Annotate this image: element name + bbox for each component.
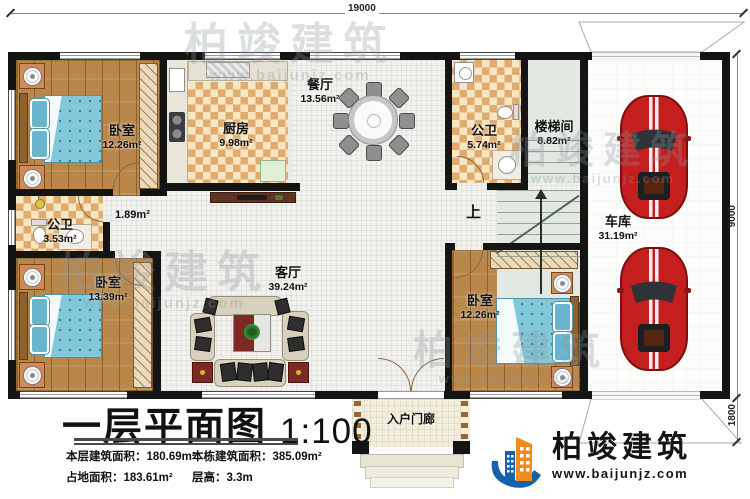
room-area: 12.26m²: [460, 309, 499, 321]
stat-label: 本层建筑面积：: [66, 451, 147, 463]
floor-plan-sheet: 上: [0, 0, 750, 499]
lamp-icon: [35, 199, 45, 209]
window: [8, 210, 16, 245]
garage-door: [592, 52, 700, 60]
ceiling-fan-icon: [23, 67, 42, 86]
interior-wall: [160, 52, 167, 196]
window: [460, 52, 515, 60]
sofa-cushion: [220, 362, 237, 382]
sofa-pillow: [287, 336, 305, 352]
room-name: 公卫: [47, 218, 73, 233]
exterior-wall: [8, 52, 16, 90]
interior-wall: [160, 183, 300, 191]
room-label-bedroom1: 卧室 12.26m²: [86, 124, 158, 151]
pillow: [553, 332, 572, 362]
pillow: [30, 297, 49, 326]
room-label-garage: 车库 31.19m²: [582, 215, 654, 242]
room-name: 卧室: [95, 276, 121, 291]
plant-icon: [244, 324, 260, 340]
side-mat: [192, 362, 213, 383]
room-area: 13.39m²: [88, 291, 127, 303]
room-name: 卧室: [467, 294, 493, 309]
interior-wall: [8, 251, 115, 258]
washing-machine-icon: [454, 62, 474, 83]
stat-value: 385.09m²: [273, 451, 322, 463]
pillow: [30, 129, 49, 159]
toilet-tank: [513, 104, 519, 120]
sofa-cushion: [236, 362, 253, 381]
exterior-wall: [8, 160, 16, 210]
room-name: 卧室: [109, 124, 135, 139]
nightstand: [19, 264, 45, 290]
stat-item: 层高：3.3m: [192, 469, 322, 485]
interior-wall: [153, 258, 161, 391]
room-name: 楼梯间: [534, 120, 573, 135]
mat-medallion: [296, 370, 301, 375]
room-name: 车库: [605, 215, 631, 230]
room-name: 客厅: [275, 266, 301, 281]
room-name: 公卫: [471, 124, 497, 139]
hall-area-label: 1.89m²: [115, 209, 150, 221]
stat-item: 本栋建筑面积：385.09m²: [192, 448, 322, 464]
porch-pillar-right: [453, 441, 470, 454]
nightstand: [19, 362, 45, 388]
brand-block: 柏竣建筑 www.baijunjz.com: [552, 433, 692, 481]
tv-sideboard: [210, 192, 296, 203]
dining-chair: [399, 113, 415, 129]
room-label-bedroom2: 卧室 13.39m²: [72, 276, 144, 303]
room-area: 31.19m²: [598, 230, 637, 242]
window: [205, 52, 280, 60]
table-center: [367, 114, 381, 128]
stair-up-label: 上: [466, 201, 481, 222]
sink-basin-icon: [498, 156, 516, 174]
stat-label: 层高：: [192, 472, 227, 484]
room-area: 9.98m²: [219, 137, 252, 149]
room-label-dining: 餐厅 13.56m²: [284, 78, 356, 105]
interior-wall: [445, 243, 455, 250]
stat-item: 本层建筑面积：180.69m²: [66, 448, 192, 464]
window: [470, 391, 562, 399]
stat-label: 占地面积：: [66, 472, 124, 484]
exterior-wall: [8, 391, 20, 399]
interior-wall: [483, 243, 580, 250]
sofa-north: [208, 296, 282, 316]
garage-door: [592, 391, 700, 399]
room-area: 8.82m²: [537, 135, 570, 147]
exterior-wall: [444, 391, 470, 399]
interior-wall: [445, 183, 457, 190]
interior-wall: [521, 52, 528, 183]
ceiling-fan-icon: [23, 169, 42, 188]
ceiling-fan-icon: [553, 274, 572, 293]
room-label-bath2: 公卫 5.74m²: [452, 124, 516, 151]
bed-headboard: [19, 292, 28, 360]
kitchen-sink-icon: [169, 68, 185, 92]
entry-door-opening: [378, 391, 444, 399]
room-label-porch: 入户门廊: [358, 413, 464, 427]
room-area: 39.24m²: [268, 281, 307, 293]
ceiling-fan-icon: [553, 368, 572, 387]
exterior-wall: [140, 52, 205, 60]
bed-mattress: [44, 294, 102, 358]
stat-value: 183.61m²: [124, 472, 173, 484]
range-hood-icon: [206, 62, 250, 78]
dimension-right-label: 9000: [727, 205, 738, 227]
room-area: 3.53m²: [43, 233, 76, 245]
stove-icon: [169, 112, 185, 142]
room-name: 餐厅: [307, 78, 333, 93]
pillow: [30, 325, 49, 354]
interior-wall: [445, 52, 452, 190]
sofa-pillow: [287, 316, 305, 333]
nightstand: [551, 366, 573, 388]
ceiling-fan-icon: [23, 366, 42, 385]
window: [8, 290, 16, 360]
car-top-view-icon: [616, 94, 692, 220]
washer-drum: [459, 67, 472, 80]
sofa-pillow: [194, 336, 212, 352]
dimension-right-lower-label: 1800: [727, 404, 738, 426]
mat-medallion: [200, 370, 205, 375]
plan-scale: 1:100: [280, 412, 373, 452]
room-area: 13.56m²: [300, 93, 339, 105]
room-label-kitchen: 厨房 9.98m²: [200, 122, 272, 149]
window: [60, 52, 140, 60]
pillow: [30, 99, 49, 129]
dining-table: [349, 96, 397, 144]
sofa-cushion: [267, 362, 284, 382]
tv-icon: [237, 195, 267, 200]
room-area: 12.26m²: [102, 139, 141, 151]
area-statistics: 本层建筑面积：180.69m² 本栋建筑面积：385.09m² 占地面积：183…: [66, 448, 322, 485]
window: [8, 90, 16, 160]
title-underline: [74, 443, 298, 445]
car-top-view-icon: [616, 246, 692, 372]
stat-value: 3.3m: [227, 472, 253, 484]
interior-wall: [143, 251, 161, 258]
pillow: [553, 302, 572, 332]
nightstand: [19, 165, 45, 191]
nightstand: [19, 63, 45, 89]
room-label-bath1: 公卫 3.53m²: [28, 218, 92, 245]
interior-wall: [8, 189, 113, 196]
sofa-pillow: [194, 317, 212, 334]
room-label-bedroom3: 卧室 12.26m²: [444, 294, 516, 321]
toilet-icon: [497, 106, 513, 119]
room-name: 入户门廊: [387, 413, 435, 427]
room-label-living: 客厅 39.24m²: [248, 266, 328, 293]
fridge-icon: [260, 160, 286, 182]
dimension-top-label: 19000: [345, 3, 379, 14]
interior-wall: [487, 183, 528, 190]
stat-item: 占地面积：183.61m²: [66, 469, 192, 485]
brand-website: www.baijunjz.com: [552, 466, 692, 481]
stat-value: 180.69m²: [147, 451, 196, 463]
side-mat: [288, 362, 309, 383]
room-area: 5.74m²: [467, 139, 500, 151]
stair-arrow-icon: [535, 189, 547, 199]
dining-chair: [366, 145, 382, 161]
room-label-stairwell: 楼梯间 8.82m²: [522, 120, 586, 147]
dining-chair: [333, 113, 349, 129]
room-name: 厨房: [223, 122, 249, 137]
window: [310, 52, 400, 60]
exterior-wall: [280, 52, 310, 60]
bed-sheet: [45, 295, 101, 357]
plant-pot-icon: [275, 195, 283, 200]
bed-headboard: [19, 93, 28, 163]
nightstand: [551, 272, 573, 294]
ceiling-fan-icon: [23, 268, 42, 287]
brand-name: 柏竣建筑: [552, 433, 692, 463]
brand-logo-icon: [486, 433, 548, 491]
title-underline: [74, 438, 298, 441]
stat-label: 本栋建筑面积：: [192, 451, 273, 463]
